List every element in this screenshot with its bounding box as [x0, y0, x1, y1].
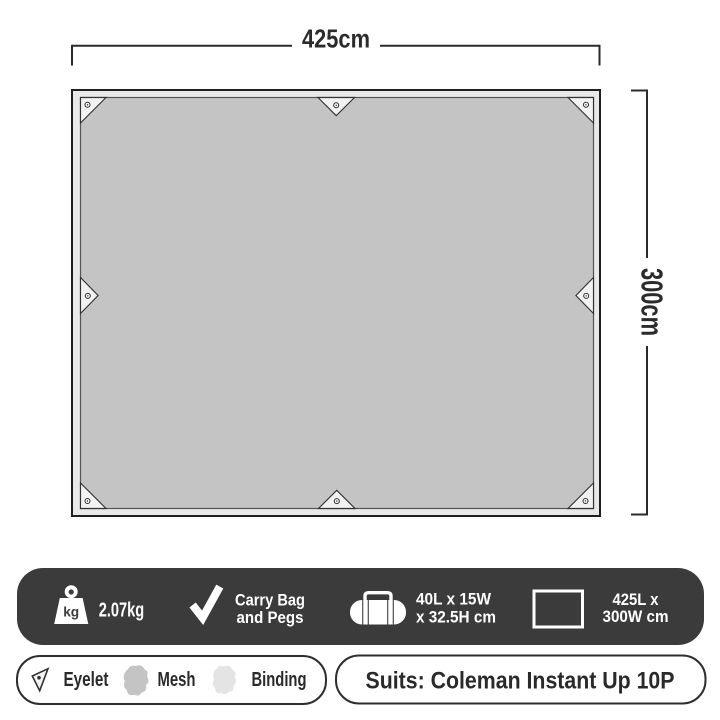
- svg-text:425cm: 425cm: [302, 24, 370, 54]
- svg-text:2.07kg: 2.07kg: [99, 600, 145, 622]
- svg-text:Binding: Binding: [252, 669, 307, 691]
- svg-text:Eyelet: Eyelet: [64, 669, 109, 691]
- svg-text:300cm: 300cm: [635, 268, 670, 336]
- svg-text:and Pegs: and Pegs: [237, 608, 304, 627]
- svg-text:kg: kg: [63, 604, 79, 620]
- svg-text:x 32.5H cm: x 32.5H cm: [416, 608, 496, 627]
- svg-text:Suits: Coleman Instant Up 10P: Suits: Coleman Instant Up 10P: [366, 668, 675, 695]
- svg-text:40L x 15W: 40L x 15W: [416, 589, 492, 608]
- svg-text:Mesh: Mesh: [158, 669, 196, 691]
- svg-text:300W cm: 300W cm: [603, 607, 669, 626]
